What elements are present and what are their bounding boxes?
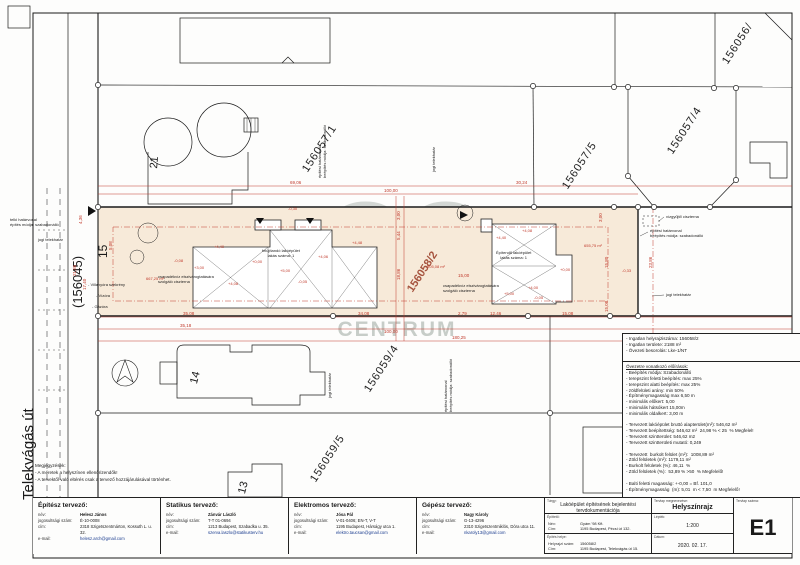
parcel-data-line: - Övezeti besorolás: Lke-1/NT: [626, 348, 797, 354]
drawing-title-label: Tervlap megnevezése:: [654, 499, 688, 503]
plan-label: jogi telekhatár: [666, 293, 691, 298]
title-block-right: Tárgy: Lakóépület építésének bejelentési…: [545, 498, 792, 554]
plan-label: építési határvonal beépítés módja: szaba…: [650, 229, 703, 239]
plan-label: 69,06: [290, 180, 301, 185]
structural-heading: Statikus tervező:: [166, 502, 283, 509]
scale-value: 1:200: [683, 519, 702, 529]
architect-designer-box: Építész tervező: név:Helesz János jogosu…: [33, 498, 161, 554]
plan-label: 5,44: [396, 231, 401, 240]
plan-label: 17,40: [82, 279, 87, 290]
plan-label: Építendő lakóépület lakás száma: 1: [496, 251, 531, 261]
project-title-cell: Tárgy: Lakóépület építésének bejelentési…: [545, 498, 652, 514]
plan-label: +4,40: [214, 245, 224, 250]
plan-label: +0,00: [560, 268, 570, 273]
field-label: e-mail:: [294, 530, 336, 536]
mechanical-email: nkaroly13@gmail.com: [464, 530, 539, 536]
plan-label: - Gázóra: [92, 305, 108, 310]
sheet-number-cell: Tervlap száma: E1: [734, 498, 792, 554]
plan-label: 30,24: [516, 180, 527, 185]
project-title: Lakóépület építésének bejelentési tervdo…: [545, 498, 651, 514]
plan-label: 2,79: [458, 311, 467, 316]
electrical-designer-box: Elektromos tervező: név:Jósa Pál jogosul…: [289, 498, 417, 554]
plan-label: -0,30: [288, 207, 297, 212]
mechanical-heading: Gépész tervező:: [422, 502, 539, 509]
plan-label: 12,46: [490, 311, 501, 316]
scale-cell: Lépték: 1:200: [652, 514, 734, 534]
plan-label: 156059/5: [308, 433, 348, 485]
architect-heading: Építész tervező:: [38, 502, 155, 509]
plan-label: 156057/5: [560, 140, 600, 192]
plan-label: 14: [188, 370, 204, 385]
zoning-data-line: - Építménymagasság (m): 5,01 m < 7,50 m …: [626, 487, 797, 493]
zoning-data-box: Övezetre vonatkozó előírások:- Beépítés …: [622, 361, 800, 498]
plan-label: 35,18: [180, 323, 191, 328]
parcel-data-box: - Ingatlan helyrajziszáma: 156058/2- Ing…: [622, 333, 800, 363]
plan-label: -0,08: [174, 259, 183, 264]
plan-label: +4,00: [528, 286, 538, 291]
client-label: Építtető:: [547, 515, 560, 519]
site-label: Építés helye:: [547, 535, 567, 539]
plan-label: 505,08 m²: [427, 265, 445, 270]
plan-label: 100,00: [384, 188, 398, 193]
plan-label: vízgyűjtő ciszterna: [666, 215, 699, 220]
plan-label: 156058/2: [405, 250, 441, 296]
plan-label: 21: [148, 156, 162, 169]
plan-label: 4,36: [78, 215, 83, 224]
remarks-line: - A méretek a helyszínen ellenőrizendők!: [35, 470, 171, 477]
plan-label: 13: [236, 480, 252, 495]
sheet-number-label: Tervlap száma:: [736, 499, 759, 503]
plan-label: - Villanyóra szekrény: [88, 283, 125, 288]
date-cell: Dátum: 2020. 02. 17.: [652, 534, 734, 554]
plan-label: 15,08: [604, 301, 609, 312]
plan-label: 21,86: [72, 265, 77, 276]
remarks-block: Megjegyzések: - A méretek a helyszínen e…: [35, 463, 171, 484]
plan-label: -0,05: [298, 280, 307, 285]
plan-label: 655,75 m²: [584, 244, 602, 249]
site-address: 1195 Budapest, Telekvágás út 15.: [580, 546, 638, 551]
plan-label: -0,33: [622, 269, 631, 274]
drawing-sheet: OC OTTHON CENTRUM: [0, 0, 800, 565]
plan-label: jogi telekhatár: [432, 147, 437, 172]
plan-label: +4,06: [318, 255, 328, 260]
plan-label: 3,00: [396, 211, 401, 220]
plan-label: csapadékvíz elszivárogtatására szolgáló …: [443, 284, 499, 294]
architect-address: 2318 Szigetszentmárton, Kossuth L. u. 32…: [80, 524, 155, 536]
field-label: e-mail:: [166, 530, 208, 536]
plan-label: 3,00: [598, 213, 603, 222]
plan-label: 156059/4: [362, 343, 402, 395]
plan-label: +5,00: [504, 292, 514, 297]
plan-label: +4,48: [352, 241, 362, 246]
plan-label: +3,00: [194, 266, 204, 271]
plan-label: 156057/4: [665, 105, 705, 157]
date-value: 2020. 02. 17.: [675, 539, 710, 549]
architect-email: helesz.arch@gmail.com: [80, 536, 155, 542]
plan-label: 180,25: [452, 335, 466, 340]
field-label: cím:: [38, 524, 80, 536]
date-label: Dátum:: [654, 535, 665, 539]
plan-label: +4,08: [522, 229, 532, 234]
electrical-heading: Elektromos tervező:: [294, 502, 411, 509]
structural-designer-box: Statikus tervező: név:Zánvár László jogo…: [161, 498, 289, 554]
plan-label: - Vízóra: [96, 294, 110, 299]
electrical-email: elektro.taucsan@gmail.com: [336, 530, 411, 536]
plan-label: 15,08: [562, 311, 573, 316]
plan-label: 34,08: [358, 311, 369, 316]
plan-label: +5,00: [280, 269, 290, 274]
title-block: Építész tervező: név:Helesz János jogosu…: [33, 497, 792, 554]
scale-label: Lépték:: [654, 515, 665, 519]
site-addr-key: Cím:: [548, 546, 580, 551]
plan-label: +4,40: [496, 236, 506, 241]
plan-label: 667,25 m²: [146, 277, 164, 282]
plan-label: 23,86: [648, 257, 653, 268]
plan-label: 15,80: [604, 257, 609, 268]
sheet-number: E1: [747, 511, 780, 541]
remarks-title: Megjegyzések:: [35, 463, 171, 470]
mechanical-designer-box: Gépész tervező: név:Nagy Károly jogosult…: [417, 498, 545, 554]
drawing-title-cell: Tervlap megnevezése: Helyszínrajz: [652, 498, 734, 514]
plan-label: +0,00: [252, 260, 262, 265]
plan-label: 5,08: [108, 241, 113, 250]
site-cell: Építés helye: Helyrajzi szám:156058/2 Cí…: [545, 534, 652, 554]
plan-label: 35,08: [183, 311, 194, 316]
plan-label: 18,86: [396, 269, 401, 280]
plan-label: 100,00: [384, 329, 398, 334]
plan-label: építési határvonal beépítés módja: szaba…: [444, 359, 454, 412]
client-address: 1195 Budapest, Pécsi út 132.: [580, 526, 631, 531]
plan-label: csapadékvíz elszivárogtatására szolgáló …: [158, 275, 214, 285]
plan-label: építési határvonal beépítés módja: szaba…: [318, 125, 328, 178]
structural-email: szerva.laszlo@statikusterv.hu: [208, 530, 283, 536]
plan-label: jogi telekhatár: [38, 238, 63, 243]
plan-label: Telekvágás út: [20, 408, 38, 500]
plan-label: 15,00: [458, 273, 469, 278]
client-cell: Építtető: Név:Gyám '98 Kft. Cím:1195 Bud…: [545, 514, 652, 534]
client-addr-key: Cím:: [548, 526, 580, 531]
field-label: e-mail:: [38, 536, 80, 542]
plan-label: jogi telekhatár: [328, 373, 333, 398]
plan-label: telki határvonal építés módja: szabadoná…: [10, 218, 59, 228]
subject-label: Tárgy:: [547, 499, 557, 503]
field-label: e-mail:: [422, 530, 464, 536]
plan-label: +4,08: [228, 282, 238, 287]
remarks-line: - A tervektől való eltérés csak a tervez…: [35, 477, 171, 484]
plan-label: 156056/: [720, 21, 757, 67]
plan-label: felújítandó lakóépület lakás száma: 1: [262, 249, 300, 259]
plan-label: -0,05: [534, 296, 543, 301]
